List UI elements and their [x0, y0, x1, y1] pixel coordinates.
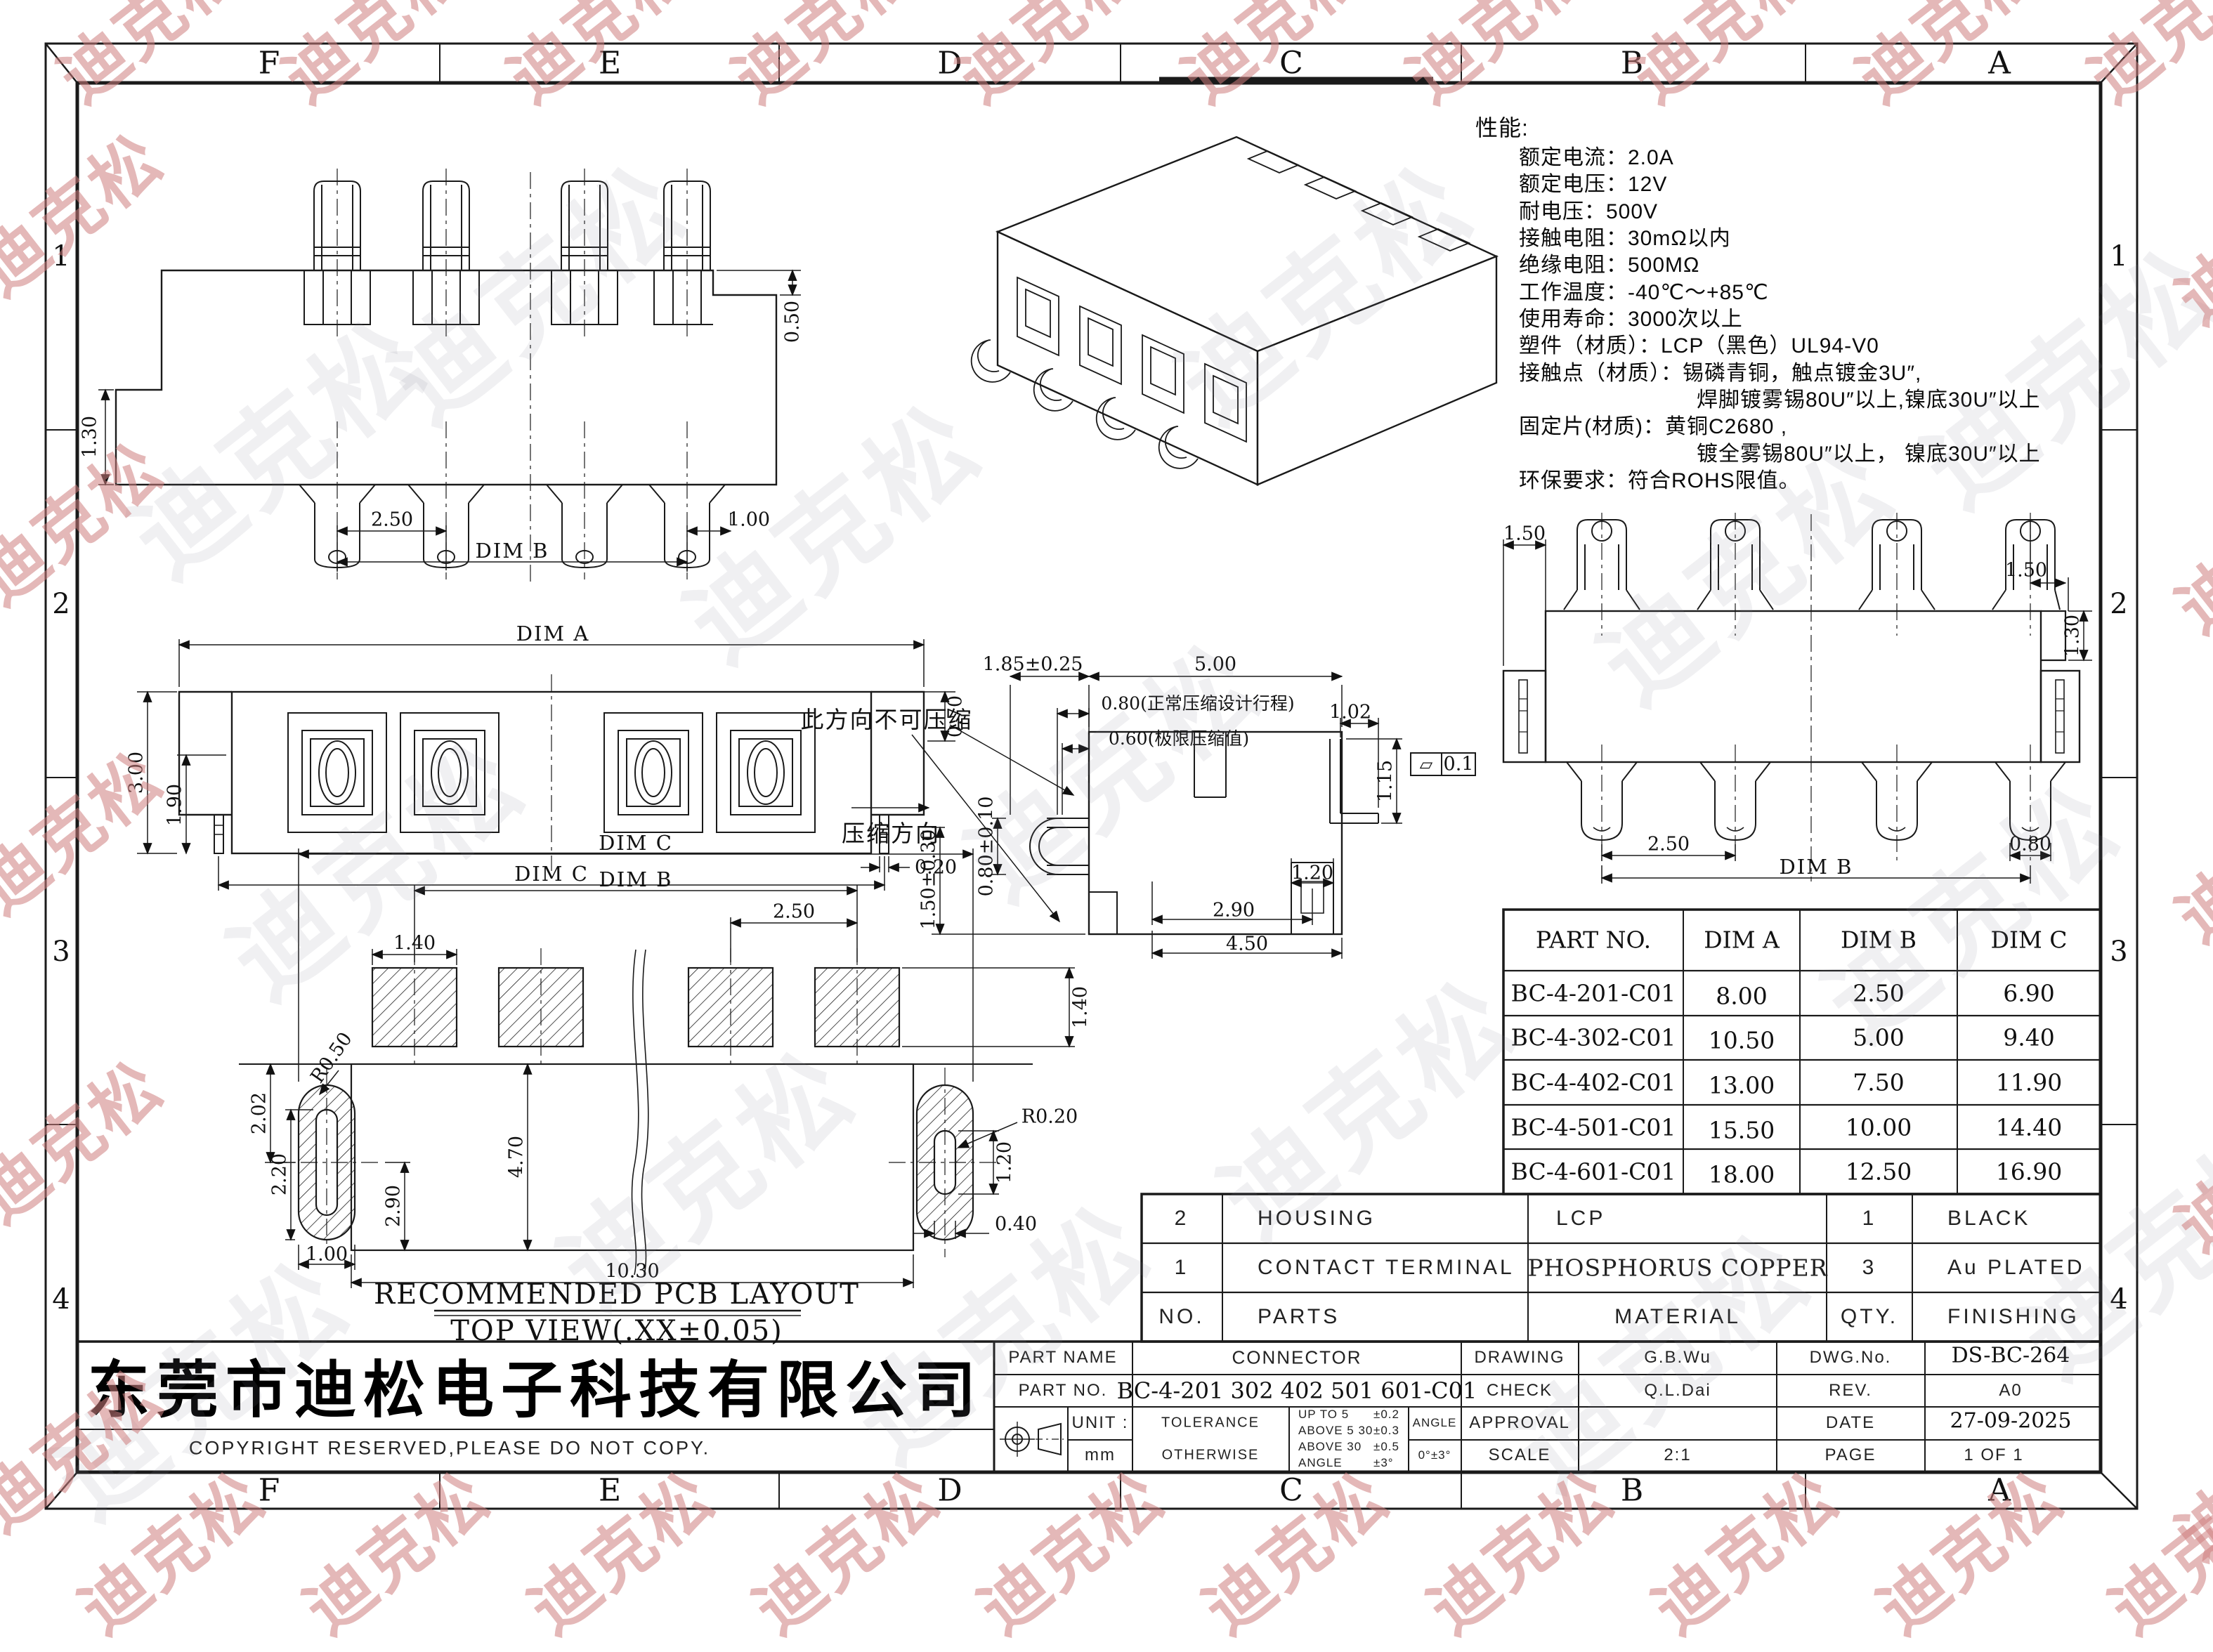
dim-label: R0.20	[1021, 1106, 1078, 1128]
parts-header-partno: PART NO.	[1536, 926, 1651, 954]
spec-line: 塑件（材质）：LCP（黑色）UL94-V0	[1519, 328, 1879, 359]
dim-label: 4.50	[1226, 933, 1268, 955]
dim-label: 0.80(正常压缩设计行程)	[1101, 690, 1294, 715]
border-letter-top-c: C	[1279, 46, 1303, 81]
parts-cell: BC-4-501-C01	[1511, 1114, 1676, 1141]
dim-label: DIM B	[476, 539, 549, 563]
spec-line: 绝缘电阻：500MΩ	[1519, 247, 1699, 278]
parts-cell: 14.40	[1996, 1114, 2062, 1141]
engineering-drawing-sheet: { "watermark": {"text": "迪克松"}, "frame":…	[0, 0, 2213, 1553]
border-number-right-2: 2	[2110, 588, 2127, 620]
border-letter-bottom-e: E	[599, 1473, 621, 1509]
dim-label: 1.20	[1291, 863, 1333, 884]
dim-label: 5.00	[1194, 654, 1236, 676]
border-number-right-3: 3	[2110, 936, 2127, 968]
border-letter-bottom-b: B	[1621, 1473, 1643, 1509]
spec-line: 环保要求：符合ROHS限值。	[1519, 463, 1801, 494]
parts-cell: BC-4-402-C01	[1511, 1069, 1676, 1096]
tol-row-value: ±3°	[1373, 1456, 1394, 1470]
dim-label: 1.00	[728, 509, 770, 531]
parts-cell: 5.00	[1853, 1024, 1904, 1051]
tol-row-label: UP TO 5	[1298, 1408, 1349, 1422]
border-letter-top-e: E	[599, 46, 621, 81]
dim-label: 2.02	[249, 1092, 270, 1134]
bom-cell: HOUSING	[1258, 1207, 1376, 1231]
border-letter-bottom-a: A	[1988, 1473, 2011, 1509]
dim-label: DIM B	[1780, 855, 1853, 879]
approval-label: APPROVAL	[1469, 1413, 1570, 1433]
bom-cell: Au PLATED	[1947, 1256, 2085, 1280]
border-letter-top-a: A	[1988, 46, 2011, 81]
border-letter-top-d: D	[937, 46, 962, 81]
drawing-label: DRAWING	[1474, 1348, 1565, 1368]
dim-label: 1.50	[2005, 560, 2047, 582]
bom-cell: 1	[1175, 1256, 1189, 1280]
bom-cell: PHOSPHORUS COPPER	[1527, 1254, 1827, 1282]
dim-label: 0.80±0.10	[976, 796, 998, 897]
parts-cell: 16.90	[1996, 1158, 2062, 1186]
dim-label: DIM A	[516, 622, 590, 645]
unit-value: mm	[1085, 1445, 1116, 1465]
tol-row-label: ABOVE 5 30	[1298, 1424, 1373, 1438]
dim-label: 2.50	[371, 509, 413, 531]
border-number-left-2: 2	[52, 588, 70, 620]
dim-label: 2.90	[383, 1185, 405, 1227]
parts-cell: 13.00	[1709, 1072, 1775, 1099]
border-number-right-4: 4	[2110, 1283, 2127, 1316]
dim-label: 0.60(极限压缩值)	[1109, 725, 1249, 750]
dim-label: 4.70	[506, 1136, 528, 1178]
tol-row-label: ANGLE	[1298, 1456, 1343, 1470]
part-name-value: CONNECTOR	[1232, 1347, 1362, 1369]
dim-label: 1.15	[1375, 760, 1397, 802]
tolerance-label-1: TOLERANCE	[1161, 1415, 1260, 1431]
bom-cell: PARTS	[1258, 1305, 1340, 1329]
tolerance-label-2: OTHERWISE	[1162, 1448, 1260, 1464]
parts-cell: 10.50	[1709, 1027, 1775, 1054]
dwgno-value: DS-BC-264	[1952, 1344, 2070, 1368]
parts-cell: 6.90	[2003, 980, 2054, 1007]
view-isometric	[972, 137, 1496, 485]
dim-label: 1.40	[1070, 986, 1092, 1028]
parts-cell: 12.50	[1846, 1158, 1912, 1186]
parts-cell: 7.50	[1853, 1069, 1904, 1096]
page-label: PAGE	[1825, 1445, 1876, 1465]
bom-cell: QTY.	[1841, 1305, 1898, 1329]
parts-cell: 10.00	[1846, 1114, 1912, 1141]
parts-cell: 9.40	[2003, 1024, 2054, 1051]
drawing-value: G.B.Wu	[1644, 1348, 1711, 1368]
dim-label: 0.1	[1444, 754, 1474, 775]
spec-line: 额定电压：12V	[1519, 166, 1667, 197]
parts-cell: 8.00	[1716, 983, 1767, 1010]
angle-label: ANGLE	[1413, 1416, 1457, 1430]
part-name-label: PART NAME	[1008, 1348, 1117, 1368]
dim-label: DIM C	[514, 862, 589, 886]
annotation-no-compress: 此方向不可压缩	[801, 701, 973, 735]
rev-value: A0	[1999, 1381, 2022, 1401]
parts-header-dima: DIM A	[1704, 926, 1780, 954]
dim-label: DIM C	[599, 831, 673, 855]
view-face	[137, 639, 955, 891]
tol-row-value: ±0.3	[1373, 1424, 1399, 1438]
bom-cell: NO.	[1158, 1305, 1204, 1329]
border-letter-top-f: F	[259, 46, 280, 81]
dim-label: 2.90	[1213, 900, 1255, 922]
scale-label: SCALE	[1489, 1445, 1551, 1465]
spec-line: 固定片(材质)：黄铜C2680 ,	[1519, 409, 1787, 440]
dim-label: DIM B	[599, 867, 673, 891]
unit-label: UNIT :	[1072, 1413, 1129, 1433]
border-number-left-3: 3	[52, 936, 70, 968]
tol-row-value: ±0.5	[1373, 1440, 1399, 1454]
parts-cell: 11.90	[1996, 1069, 2062, 1096]
border-number-left-4: 4	[52, 1283, 70, 1316]
dim-label: 2.50	[1647, 834, 1690, 855]
bom-cell: 1	[1862, 1207, 1877, 1231]
bom-cell: 3	[1862, 1256, 1877, 1280]
flatness-symbol-icon: ▱	[1420, 754, 1432, 774]
check-label: CHECK	[1487, 1381, 1553, 1401]
dim-label: 0.40	[995, 1214, 1037, 1235]
border-letter-bottom-d: D	[937, 1473, 962, 1509]
dim-label: 1.30	[79, 416, 101, 458]
border-letter-bottom-c: C	[1279, 1473, 1303, 1509]
tol-row-value: ±0.2	[1373, 1408, 1399, 1422]
dim-label: 1.02	[1329, 702, 1371, 723]
date-value: 27-09-2025	[1950, 1409, 2072, 1434]
bom-cell: BLACK	[1947, 1207, 2030, 1231]
angle-value: 0°±3°	[1418, 1448, 1451, 1462]
page-value: 1 OF 1	[1964, 1445, 2023, 1465]
dim-label: 1.20	[994, 1141, 1016, 1184]
parts-cell: 18.00	[1709, 1161, 1775, 1188]
view-front-elevation	[98, 169, 801, 583]
dim-label: 0.80	[2009, 834, 2051, 855]
partno-label: PART NO.	[1019, 1381, 1108, 1401]
dim-label: 2.20	[269, 1153, 291, 1195]
scale-value: 2:1	[1664, 1445, 1691, 1465]
parts-header-dimb: DIM B	[1841, 926, 1917, 954]
copyright-notice: COPYRIGHT RESERVED,PLEASE DO NOT COPY.	[189, 1438, 710, 1460]
border-letter-bottom-f: F	[259, 1473, 280, 1509]
dim-label: 3.00	[126, 752, 148, 794]
dim-label: 1.40	[393, 933, 436, 955]
dim-label: 1.30	[2062, 615, 2084, 657]
view-bottom	[1503, 513, 2092, 884]
bom-cell: 2	[1175, 1207, 1189, 1231]
parts-cell: BC-4-302-C01	[1511, 1024, 1676, 1051]
bom-cell: FINISHING	[1947, 1305, 2080, 1329]
parts-cell: 2.50	[1853, 980, 1904, 1007]
dim-label: 1.50	[1503, 523, 1546, 545]
dim-label: 1.85±0.25	[983, 654, 1083, 676]
bom-cell: MATERIAL	[1614, 1305, 1741, 1329]
parts-cell: BC-4-201-C01	[1511, 980, 1676, 1007]
pcb-layout-title: RECOMMENDED PCB LAYOUT	[374, 1278, 860, 1311]
partno-value: BC-4-201 302 402 501 601-C01	[1117, 1377, 1477, 1404]
bom-cell: LCP	[1556, 1207, 1605, 1231]
tol-row-label: ABOVE 30	[1298, 1440, 1362, 1454]
annotation-compress-direction: 压缩方向	[842, 815, 940, 848]
check-value: Q.L.Dai	[1644, 1381, 1711, 1401]
parts-cell: BC-4-601-C01	[1511, 1158, 1676, 1186]
dwgno-label: DWG.No.	[1810, 1348, 1892, 1368]
border-number-left-1: 1	[52, 240, 70, 273]
date-label: DATE	[1826, 1413, 1875, 1433]
dim-label: 1.90	[164, 784, 186, 826]
bom-cell: CONTACT TERMINAL	[1258, 1256, 1515, 1280]
border-letter-top-b: B	[1621, 46, 1643, 81]
dim-label: 2.50	[773, 901, 815, 923]
rev-label: REV.	[1829, 1381, 1872, 1401]
border-number-right-1: 1	[2110, 240, 2127, 273]
parts-header-dimc: DIM C	[1990, 926, 2067, 954]
view-pcb-layout	[239, 848, 1075, 1316]
parts-cell: 15.50	[1709, 1117, 1775, 1144]
dim-label: 0.50	[782, 301, 804, 343]
dim-label: 1.00	[306, 1244, 348, 1266]
company-name: 东莞市迪松电子科技有限公司	[88, 1341, 983, 1430]
specs-title: 性能:	[1475, 110, 1529, 143]
